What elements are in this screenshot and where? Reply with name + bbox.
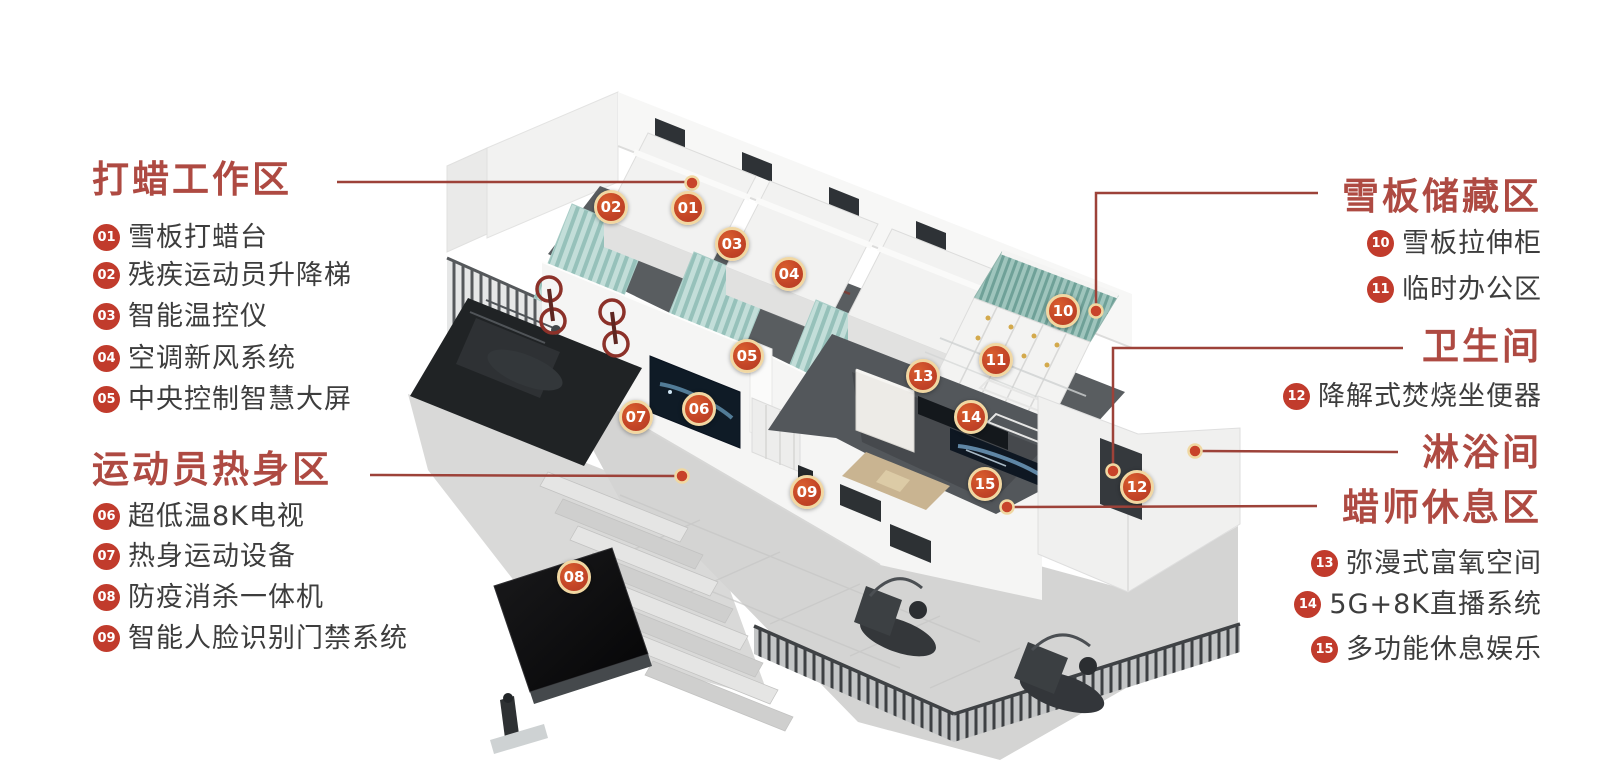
item-label: 防疫消杀一体机 — [128, 582, 324, 613]
legend-item-06: 06 超低温8K电视 — [93, 501, 305, 532]
item-number-badge: 13 — [1311, 550, 1338, 577]
building-marker-02: 02 — [594, 190, 628, 224]
item-number-badge: 08 — [93, 584, 120, 611]
legend-item-01: 01 雪板打蜡台 — [93, 222, 268, 253]
item-number-badge: 01 — [93, 224, 120, 251]
item-label: 临时办公区 — [1402, 274, 1542, 305]
item-number-badge: 12 — [1283, 383, 1310, 410]
legend-item-03: 03 智能温控仪 — [93, 301, 268, 332]
building-marker-05: 05 — [730, 339, 764, 373]
item-number-badge: 04 — [93, 345, 120, 372]
building-marker-14: 14 — [954, 400, 988, 434]
building-marker-13: 13 — [906, 359, 940, 393]
item-label: 雪板拉伸柜 — [1402, 228, 1542, 259]
item-number-badge: 15 — [1311, 636, 1338, 663]
item-label: 弥漫式富氧空间 — [1346, 548, 1542, 579]
item-number-badge: 11 — [1367, 276, 1394, 303]
item-number-badge: 07 — [93, 543, 120, 570]
section-title-warmup-area: 运动员热身区 — [92, 451, 332, 488]
building-marker-15: 15 — [968, 467, 1002, 501]
section-title-technician-rest-area: 蜡师休息区 — [1342, 489, 1542, 526]
section-title-shower-room: 淋浴间 — [1422, 434, 1542, 471]
item-number-badge: 09 — [93, 625, 120, 652]
section-title-waxing-area: 打蜡工作区 — [92, 161, 292, 198]
building-marker-10: 10 — [1046, 294, 1080, 328]
section-title-bathroom: 卫生间 — [1422, 328, 1542, 365]
legend-item-07: 07 热身运动设备 — [93, 541, 296, 572]
item-number-badge: 03 — [93, 303, 120, 330]
item-label: 空调新风系统 — [128, 343, 296, 374]
item-label: 降解式焚烧坐便器 — [1318, 381, 1542, 412]
building-marker-01: 01 — [671, 191, 705, 225]
item-label: 多功能休息娱乐 — [1346, 634, 1542, 665]
item-label: 智能人脸识别门禁系统 — [128, 623, 408, 654]
legend-item-09: 09 智能人脸识别门禁系统 — [93, 623, 408, 654]
legend-item-12: 12 降解式焚烧坐便器 — [1283, 381, 1542, 412]
building-marker-06: 06 — [682, 392, 716, 426]
item-label: 残疾运动员升降梯 — [128, 260, 352, 291]
building-marker-09: 09 — [790, 475, 824, 509]
item-number-badge: 14 — [1294, 591, 1321, 618]
item-label: 热身运动设备 — [128, 541, 296, 572]
item-label: 中央控制智慧大屏 — [128, 384, 352, 415]
legend-item-15: 15 多功能休息娱乐 — [1311, 634, 1542, 665]
building-marker-11: 11 — [979, 343, 1013, 377]
section-title-storage-area: 雪板储藏区 — [1342, 178, 1542, 215]
building-marker-08: 08 — [557, 560, 591, 594]
legend-item-08: 08 防疫消杀一体机 — [93, 582, 324, 613]
legend-item-10: 10 雪板拉伸柜 — [1367, 228, 1542, 259]
item-number-badge: 10 — [1367, 230, 1394, 257]
item-label: 雪板打蜡台 — [128, 222, 268, 253]
building-marker-12: 12 — [1120, 470, 1154, 504]
item-label: 智能温控仪 — [128, 301, 268, 332]
item-number-badge: 02 — [93, 262, 120, 289]
infographic-canvas: 01 02 03 04 05 06 07 08 09 10 11 12 13 1… — [0, 0, 1600, 763]
building-marker-04: 04 — [772, 257, 806, 291]
legend-item-14: 14 5G+8K直播系统 — [1294, 589, 1542, 620]
legend-item-04: 04 空调新风系统 — [93, 343, 296, 374]
item-number-badge: 05 — [93, 386, 120, 413]
legend-item-05: 05 中央控制智慧大屏 — [93, 384, 352, 415]
building-marker-07: 07 — [619, 400, 653, 434]
item-label: 5G+8K直播系统 — [1329, 589, 1542, 620]
legend-item-02: 02 残疾运动员升降梯 — [93, 260, 352, 291]
item-label: 超低温8K电视 — [128, 501, 305, 532]
item-number-badge: 06 — [93, 503, 120, 530]
legend-item-13: 13 弥漫式富氧空间 — [1311, 548, 1542, 579]
building-marker-03: 03 — [715, 227, 749, 261]
legend-item-11: 11 临时办公区 — [1367, 274, 1542, 305]
